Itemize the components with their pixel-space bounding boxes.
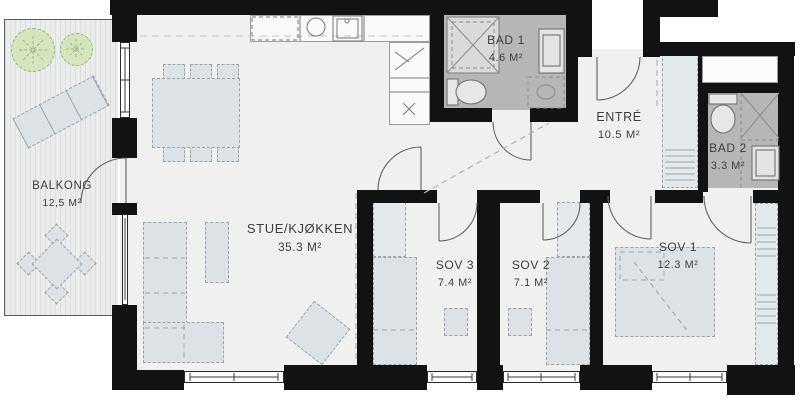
room-area: 3.3 M² xyxy=(688,158,768,175)
room-label-bad2: BAD 2 3.3 M² xyxy=(688,139,768,174)
room-name: SOV 3 xyxy=(415,256,495,275)
room-area: 7.4 M² xyxy=(415,275,495,292)
room-name: ENTRÉ xyxy=(579,108,659,127)
wall xyxy=(590,190,603,367)
room-area: 12,5 M² xyxy=(12,196,112,212)
room-name: SOV 2 xyxy=(491,256,571,275)
dining-chair xyxy=(190,146,212,162)
wall xyxy=(112,0,137,42)
sofa-section xyxy=(143,322,224,363)
wall xyxy=(580,365,652,390)
room-label-stue-kjokken: STUE/KJØKKEN 35.3 M² xyxy=(235,219,365,257)
room-area: 4.6 M² xyxy=(466,50,546,67)
window xyxy=(184,371,284,383)
entry-alcove xyxy=(592,0,643,49)
room-area: 12.3 M² xyxy=(638,257,718,274)
window xyxy=(122,214,128,305)
nightstand xyxy=(444,308,468,336)
wall xyxy=(112,118,137,158)
dining-chair xyxy=(217,146,239,162)
floor-plan: BALKONG 12,5 M² STUE/KJØKKEN 35.3 M² BAD… xyxy=(0,0,800,410)
wardrobe xyxy=(373,202,406,257)
wall xyxy=(357,190,373,367)
wall xyxy=(284,365,427,390)
kitchen-counter-side xyxy=(389,42,430,125)
wardrobe xyxy=(755,203,778,365)
room-label-sov2: SOV 2 7.1 M² xyxy=(491,256,571,291)
window xyxy=(652,371,727,383)
room-name: SOV 1 xyxy=(638,238,718,257)
nightstand xyxy=(508,308,532,336)
window xyxy=(503,371,580,383)
wall xyxy=(477,365,503,390)
wall xyxy=(727,365,795,395)
room-name: BALKONG xyxy=(12,178,112,196)
room-label-sov1: SOV 1 12.3 M² xyxy=(638,238,718,273)
wall xyxy=(566,0,592,57)
room-name: BAD 1 xyxy=(466,31,546,50)
wall xyxy=(778,42,794,394)
window xyxy=(427,371,477,383)
single-bed xyxy=(373,257,417,365)
room-label-balkong: BALKONG 12,5 M² xyxy=(12,178,112,212)
room-area: 7.1 M² xyxy=(491,275,571,292)
room-area: 10.5 M² xyxy=(579,127,659,144)
wall xyxy=(112,370,184,390)
wall xyxy=(110,0,575,15)
room-label-entre: ENTRÉ 10.5 M² xyxy=(579,108,659,145)
room-label-bad1: BAD 1 4.6 M² xyxy=(466,31,546,66)
exterior-niche xyxy=(702,56,778,83)
dining-chair xyxy=(163,146,185,162)
wall xyxy=(430,108,492,122)
kitchen-counter-top xyxy=(250,15,430,42)
side-table xyxy=(205,222,229,283)
window xyxy=(120,42,130,118)
wall xyxy=(753,190,780,203)
wall xyxy=(698,83,780,93)
wall xyxy=(655,42,795,56)
tree-icon xyxy=(60,33,93,66)
room-label-sov3: SOV 3 7.4 M² xyxy=(415,256,495,291)
wall xyxy=(566,57,578,122)
wall xyxy=(655,190,703,203)
room-name: STUE/KJØKKEN xyxy=(235,219,365,239)
wall xyxy=(430,15,444,117)
wardrobe xyxy=(557,202,590,257)
wall xyxy=(477,190,540,203)
dining-table xyxy=(152,78,240,148)
room-name: BAD 2 xyxy=(688,139,768,158)
tree-icon xyxy=(11,28,55,72)
room-area: 35.3 M² xyxy=(235,239,365,257)
